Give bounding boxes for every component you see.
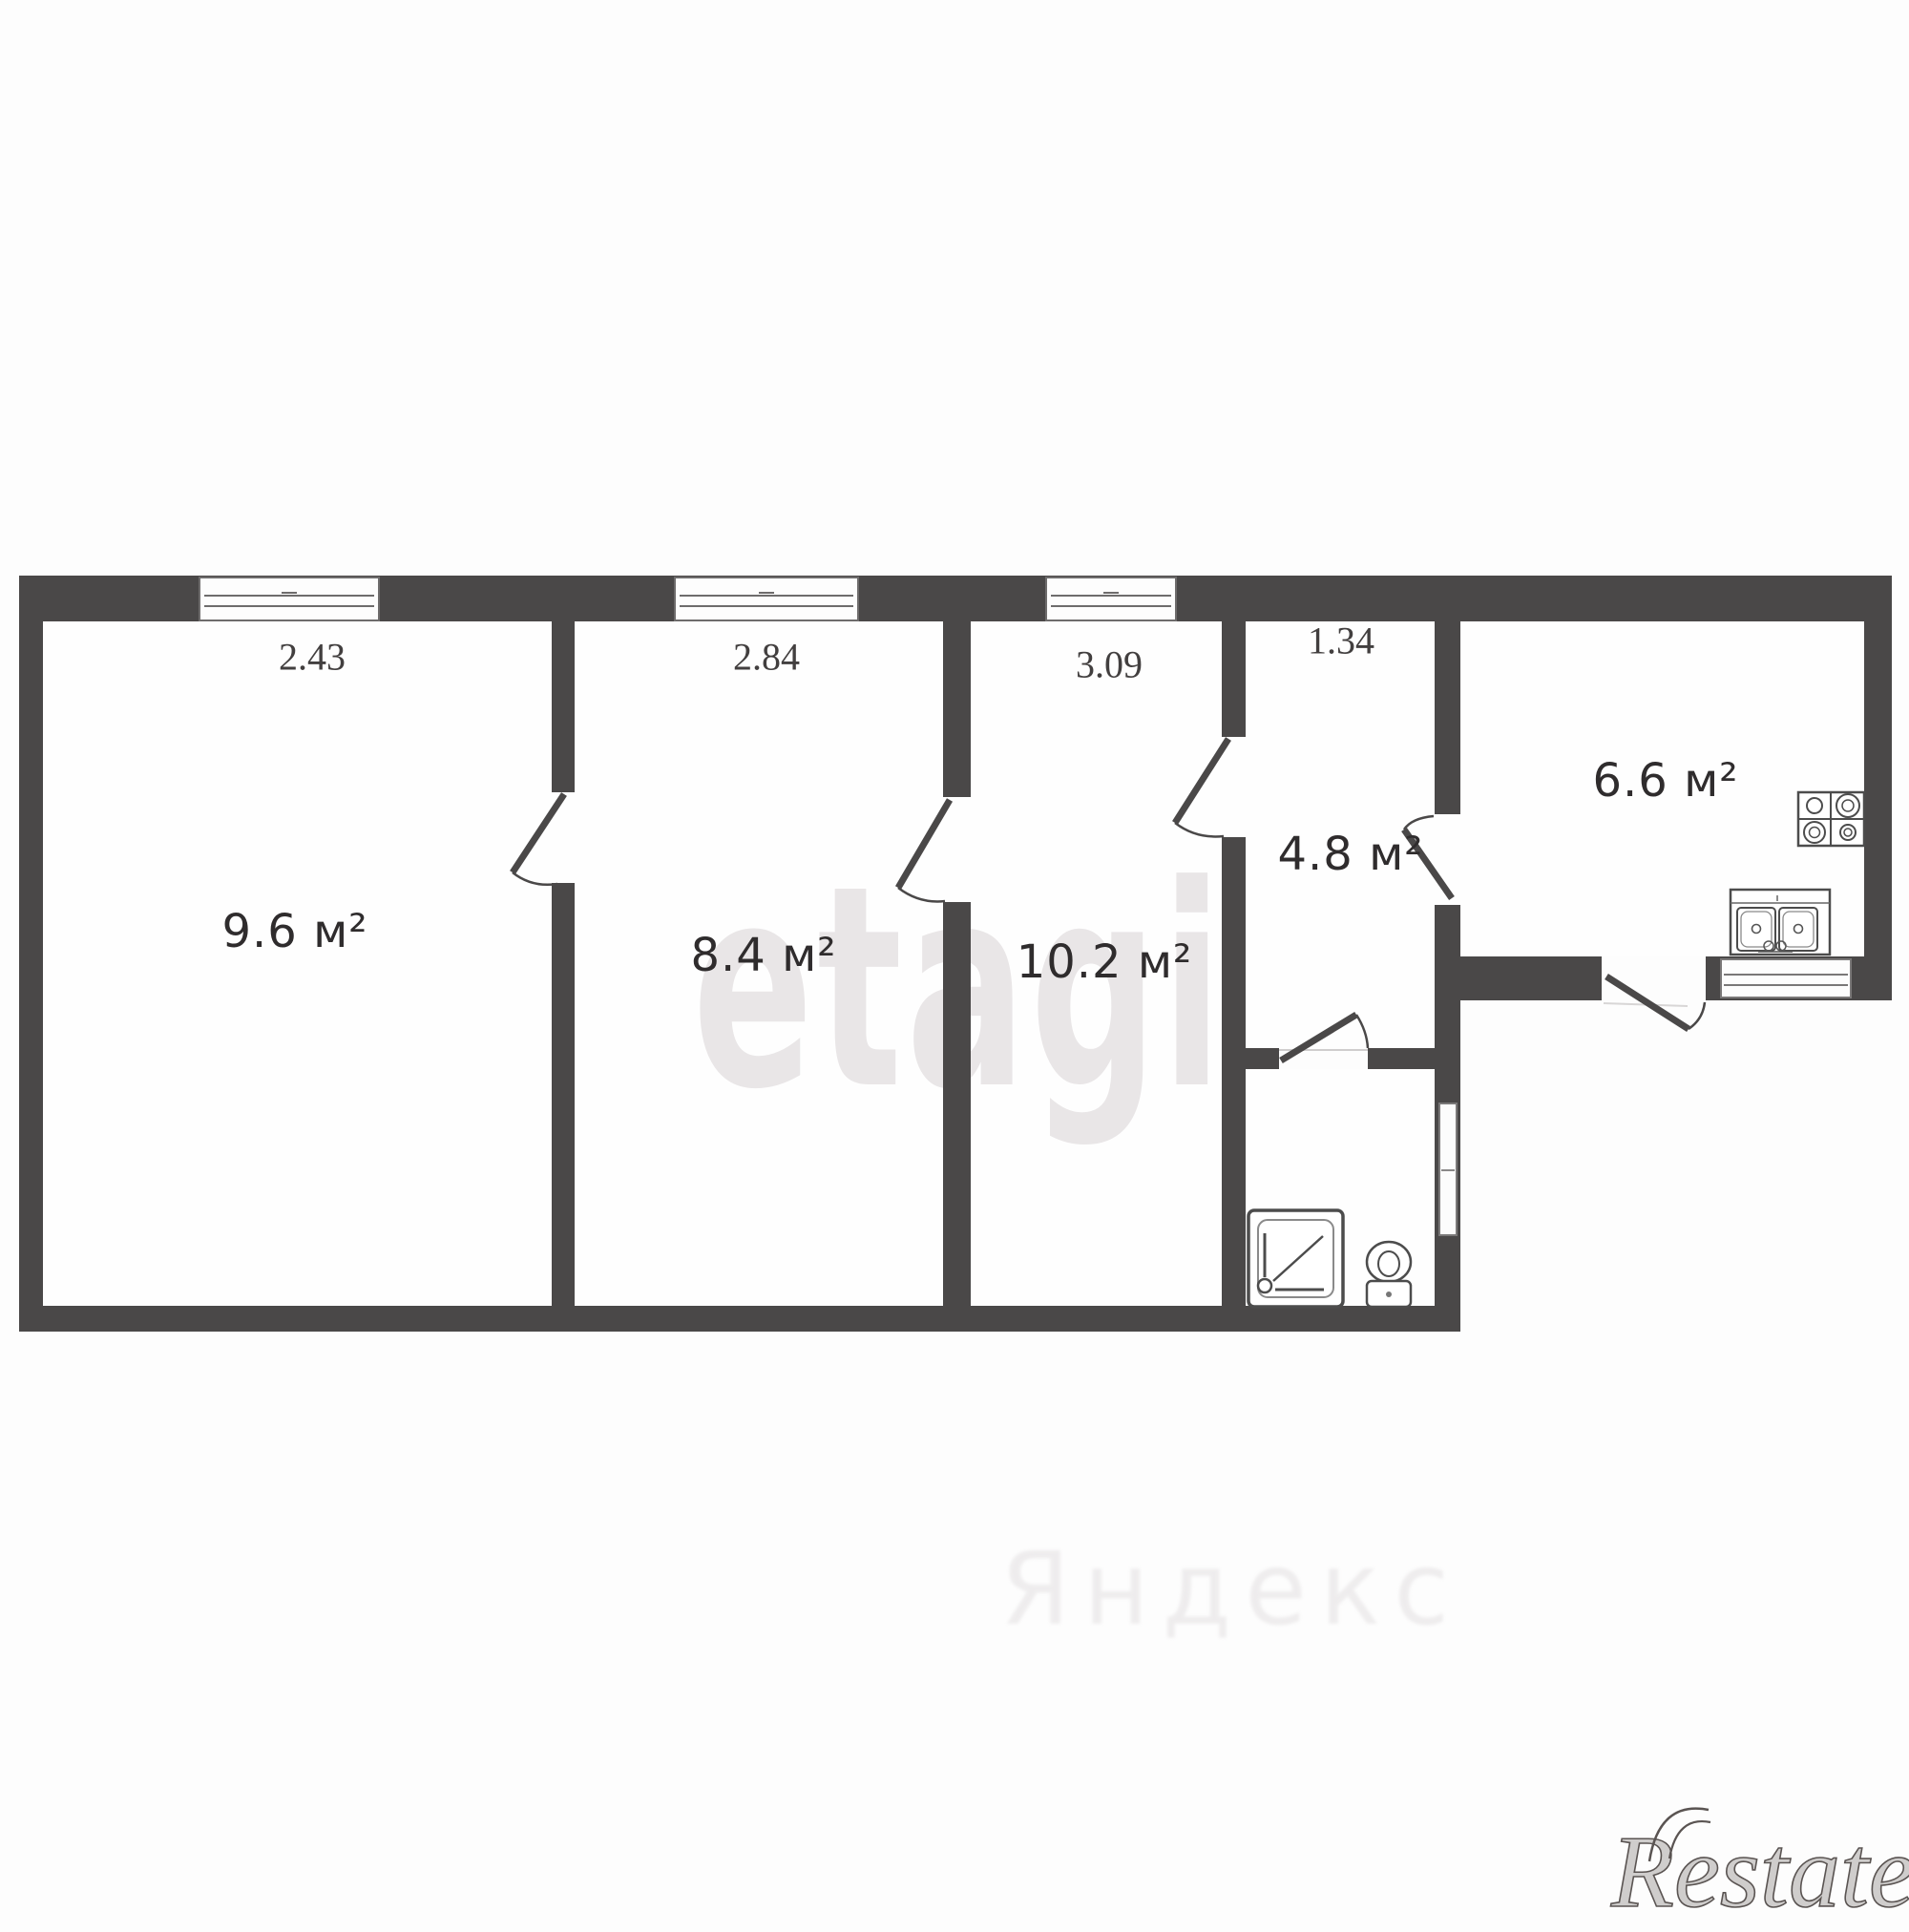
shower-icon <box>1248 1210 1343 1307</box>
door-bathroom <box>1281 1015 1368 1060</box>
room-area-label: 6.6 м² <box>1592 754 1738 808</box>
room-area-label: 8.4 м² <box>690 929 836 982</box>
toilet-icon <box>1367 1242 1411 1307</box>
dimension-label: 2.84 <box>733 635 800 680</box>
door-room1 <box>513 794 564 885</box>
floor-plan-image: { "plan": { "rooms": [ {"name": "room-1"… <box>0 0 1909 1909</box>
restate-logo: Restate <box>1611 1814 1909 1932</box>
door-room3 <box>1175 739 1228 836</box>
room-area-label: 10.2 м² <box>1017 935 1193 989</box>
stove-icon <box>1798 792 1864 846</box>
dimension-label: 2.43 <box>279 635 346 680</box>
sink-icon <box>1731 890 1830 955</box>
dimension-label: 1.34 <box>1308 619 1374 663</box>
room-area-label: 9.6 м² <box>221 905 367 958</box>
door-room2 <box>898 800 950 901</box>
door-entrance <box>1606 976 1705 1029</box>
room-area-label: 4.8 м² <box>1277 828 1423 881</box>
dimension-label: 3.09 <box>1076 642 1143 687</box>
